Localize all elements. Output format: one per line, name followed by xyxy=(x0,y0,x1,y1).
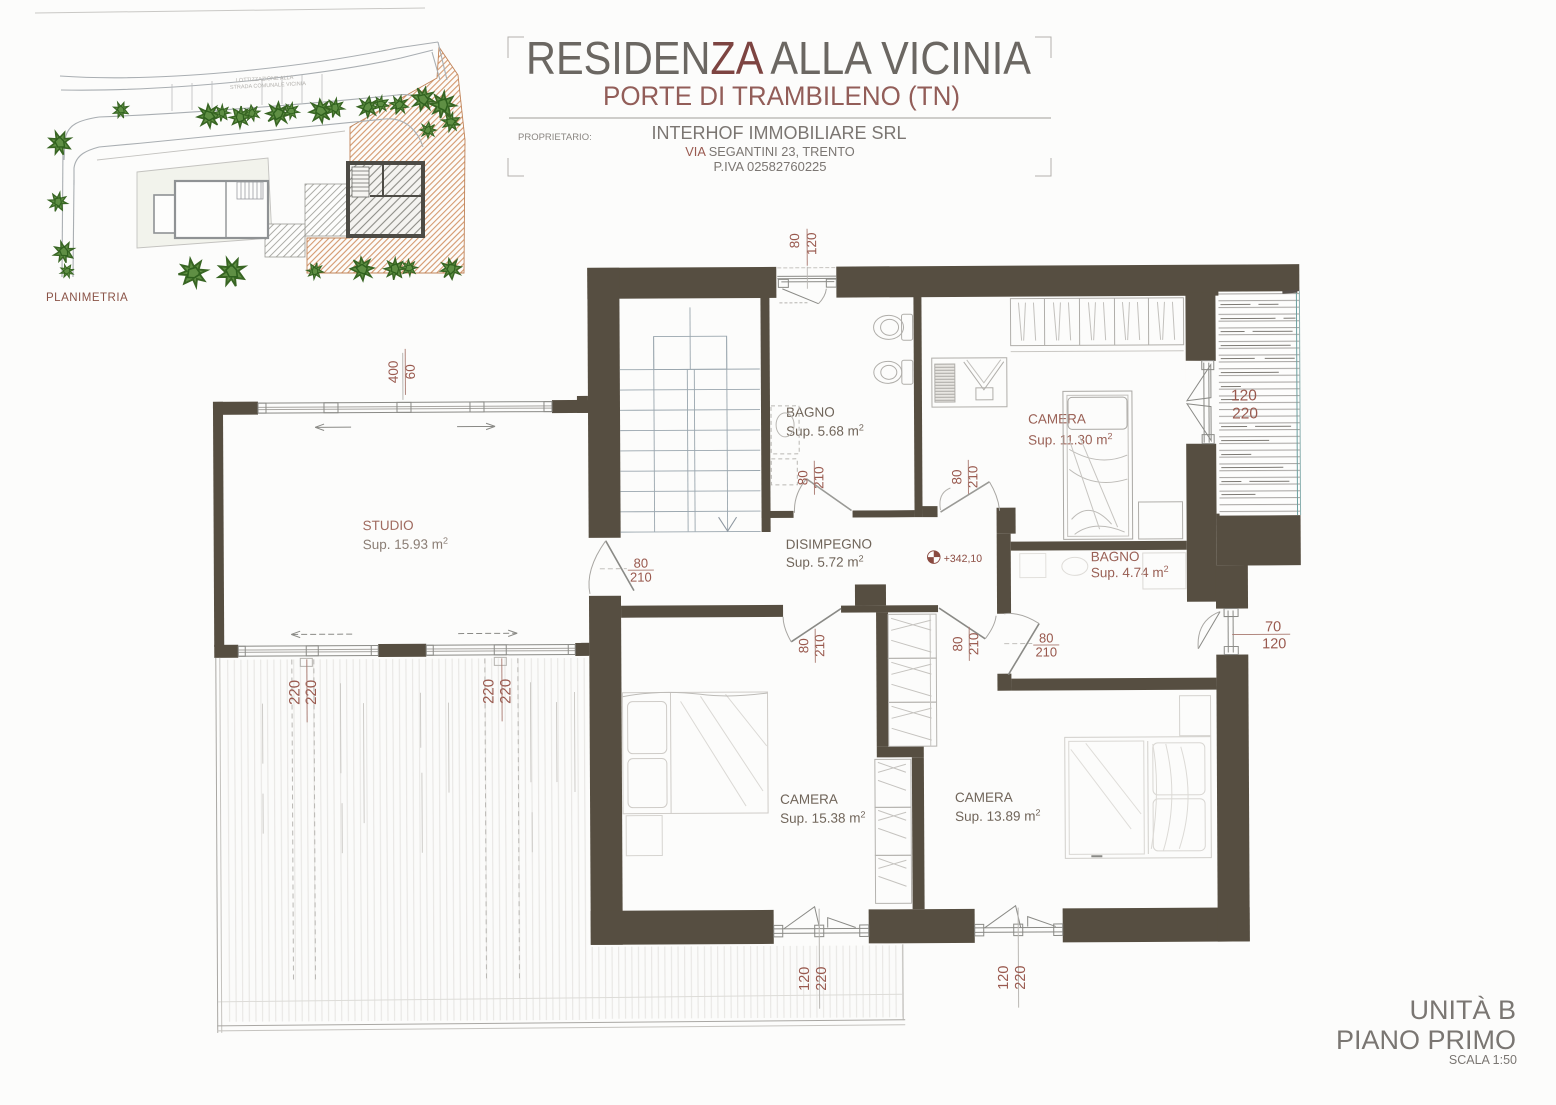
svg-text:120: 120 xyxy=(1231,387,1257,404)
svg-text:SCALA 1:50: SCALA 1:50 xyxy=(1449,1053,1517,1067)
svg-text:220: 220 xyxy=(814,967,830,991)
svg-text:PROPRIETARIO:: PROPRIETARIO: xyxy=(518,132,592,143)
svg-text:120: 120 xyxy=(996,966,1012,990)
svg-text:80: 80 xyxy=(950,636,965,651)
svg-text:70: 70 xyxy=(1265,619,1281,635)
svg-text:P.IVA 02582760225: P.IVA 02582760225 xyxy=(713,159,826,174)
svg-text:120: 120 xyxy=(804,232,819,255)
svg-text:80: 80 xyxy=(787,233,802,248)
svg-text:220: 220 xyxy=(286,680,303,705)
svg-text:210: 210 xyxy=(812,634,827,657)
svg-text:DISIMPEGNO: DISIMPEGNO xyxy=(786,536,872,551)
svg-text:220: 220 xyxy=(1013,965,1029,989)
svg-text:220: 220 xyxy=(1232,405,1258,422)
svg-text:+342,10: +342,10 xyxy=(944,553,982,565)
svg-text:120: 120 xyxy=(797,967,813,991)
svg-text:Sup. 15.38 m2: Sup. 15.38 m2 xyxy=(780,809,865,825)
svg-text:VIA SEGANTINI 23, TRENTO: VIA SEGANTINI 23, TRENTO xyxy=(685,144,855,159)
svg-text:210: 210 xyxy=(966,633,981,656)
svg-text:400: 400 xyxy=(386,361,401,384)
svg-text:210: 210 xyxy=(965,466,980,489)
svg-text:80: 80 xyxy=(634,556,649,571)
svg-text:Sup. 15.93 m2: Sup. 15.93 m2 xyxy=(363,536,448,552)
svg-text:Sup. 5.68 m2: Sup. 5.68 m2 xyxy=(786,422,864,438)
svg-text:INTERHOF IMMOBILIARE SRL: INTERHOF IMMOBILIARE SRL xyxy=(651,123,906,143)
svg-text:UNITÀ B: UNITÀ B xyxy=(1409,995,1516,1025)
svg-text:BAGNO: BAGNO xyxy=(1091,549,1140,564)
svg-text:220: 220 xyxy=(303,680,320,705)
svg-text:80: 80 xyxy=(949,469,964,484)
svg-text:Sup. 13.89 m2: Sup. 13.89 m2 xyxy=(955,808,1040,824)
svg-text:RESIDENZA ALLA VICINIA: RESIDENZA ALLA VICINIA xyxy=(526,32,1031,84)
svg-text:PIANO PRIMO: PIANO PRIMO xyxy=(1336,1025,1516,1055)
svg-text:CAMERA: CAMERA xyxy=(780,792,838,807)
svg-text:80: 80 xyxy=(1039,630,1054,645)
svg-text:Sup. 11.30 m2: Sup. 11.30 m2 xyxy=(1028,431,1112,447)
svg-text:Sup. 5.72 m2: Sup. 5.72 m2 xyxy=(786,553,864,569)
svg-text:210: 210 xyxy=(630,570,652,585)
svg-text:210: 210 xyxy=(1035,644,1057,659)
svg-text:PORTE DI TRAMBILENO (TN): PORTE DI TRAMBILENO (TN) xyxy=(603,81,960,111)
svg-text:STUDIO: STUDIO xyxy=(363,518,414,533)
svg-text:CAMERA: CAMERA xyxy=(1028,411,1086,426)
svg-text:Sup. 4.74 m2: Sup. 4.74 m2 xyxy=(1091,564,1169,580)
svg-text:BAGNO: BAGNO xyxy=(786,405,835,420)
svg-text:PLANIMETRIA: PLANIMETRIA xyxy=(46,292,128,304)
svg-text:80: 80 xyxy=(795,470,810,485)
svg-text:220: 220 xyxy=(480,679,497,704)
svg-text:CAMERA: CAMERA xyxy=(955,790,1013,805)
svg-text:120: 120 xyxy=(1262,636,1286,652)
svg-text:220: 220 xyxy=(497,679,514,704)
svg-text:210: 210 xyxy=(811,466,826,489)
svg-text:80: 80 xyxy=(796,638,811,653)
